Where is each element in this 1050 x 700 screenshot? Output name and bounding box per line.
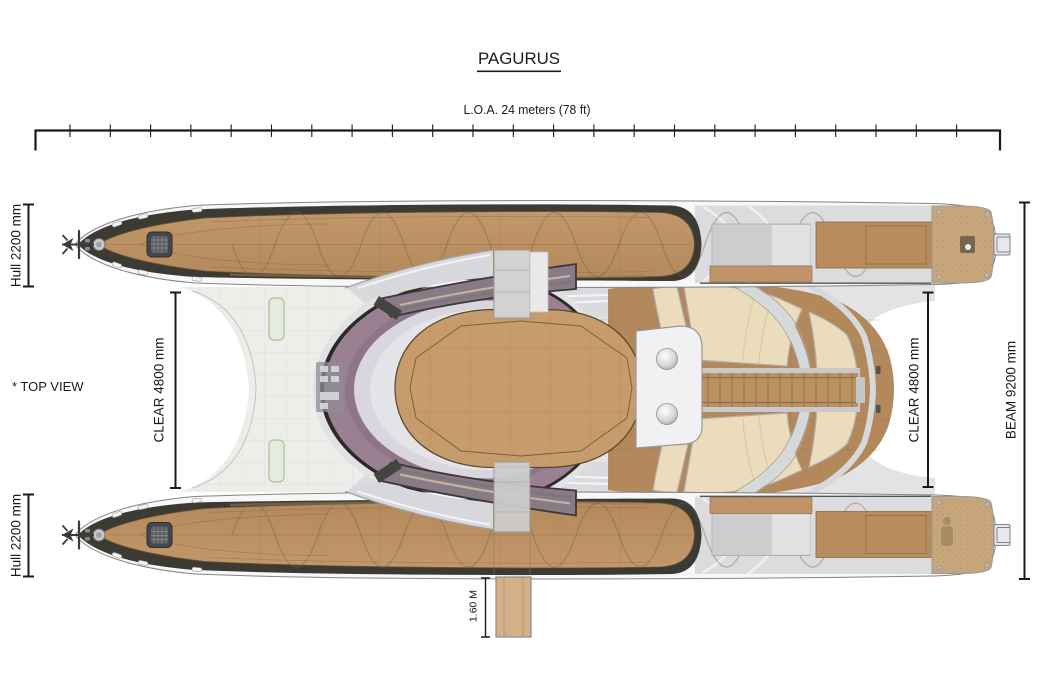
svg-text:CLEAR 4800 mm: CLEAR 4800 mm xyxy=(152,337,167,442)
svg-text:Hull 2200 mm: Hull 2200 mm xyxy=(9,494,24,577)
svg-text:PAGURUS: PAGURUS xyxy=(478,49,560,68)
svg-text:Hull 2200 mm: Hull 2200 mm xyxy=(9,204,24,287)
svg-text:1.60 M: 1.60 M xyxy=(468,590,480,622)
svg-text:BEAM 9200 mm: BEAM 9200 mm xyxy=(1004,341,1019,439)
svg-text:CLEAR 4800 mm: CLEAR 4800 mm xyxy=(907,337,922,442)
svg-text:L.O.A. 24 meters (78 ft): L.O.A. 24 meters (78 ft) xyxy=(464,102,591,117)
svg-text:* TOP VIEW: * TOP VIEW xyxy=(12,379,84,394)
